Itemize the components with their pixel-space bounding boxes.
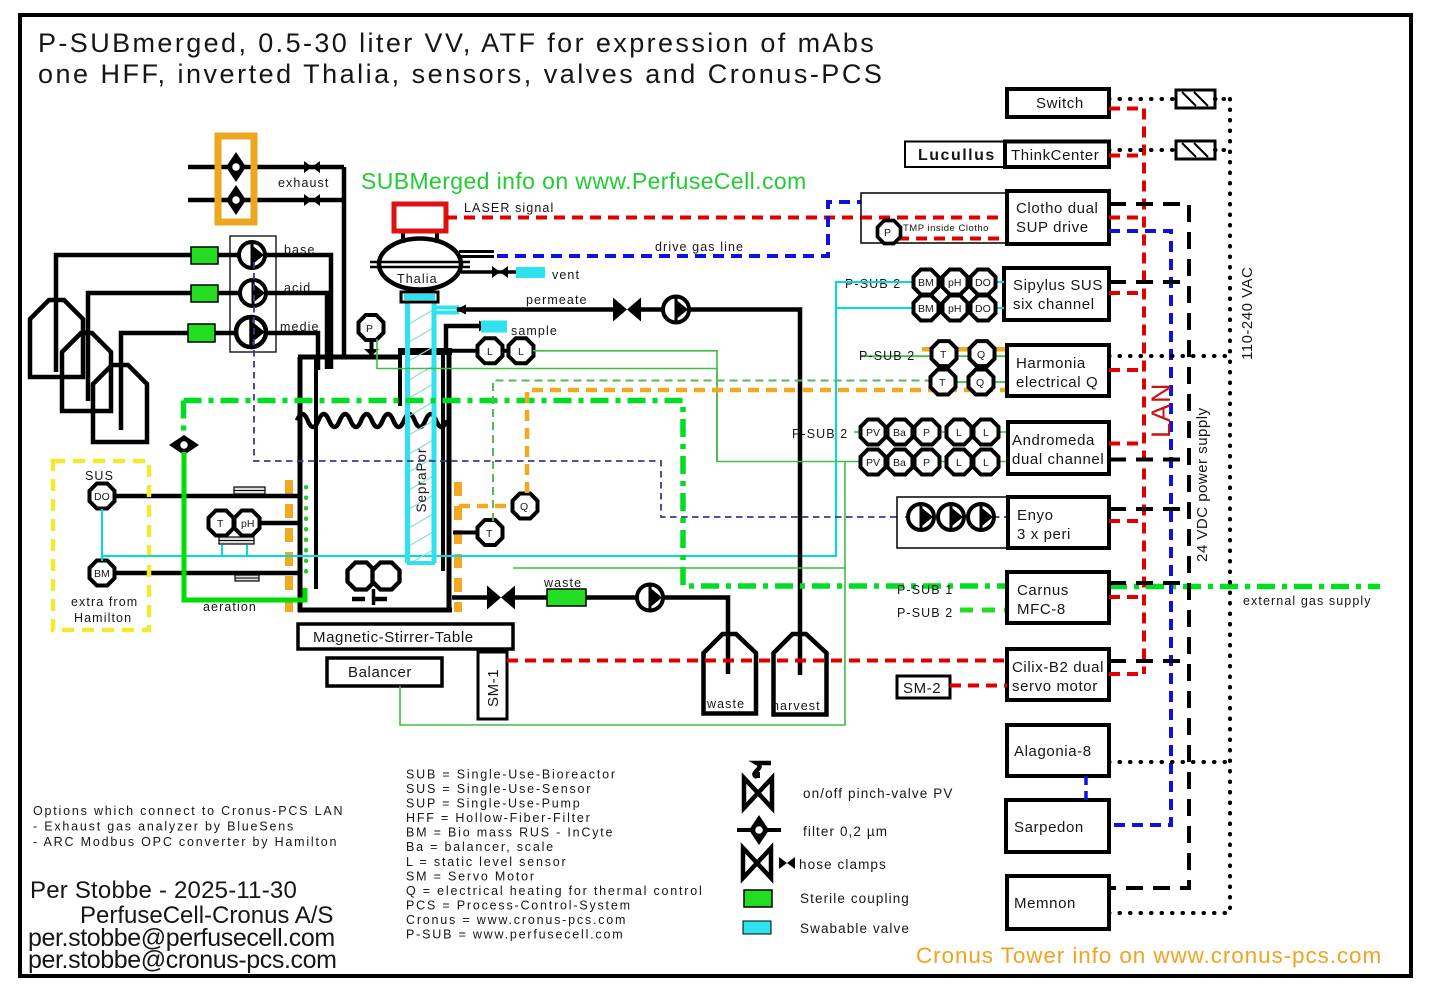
svg-text:ThinkCenter: ThinkCenter — [1011, 147, 1099, 164]
svg-text:DO: DO — [975, 303, 991, 315]
svg-text:waste: waste — [543, 576, 582, 590]
svg-text:SUB = Single-Use-Bioreactor: SUB = Single-Use-Bioreactor — [406, 768, 617, 782]
svg-text:drive gas line: drive gas line — [655, 240, 744, 254]
svg-text:one HFF, inverted Thalia, sens: one HFF, inverted Thalia, sensors, valve… — [38, 59, 884, 89]
svg-text:L: L — [956, 457, 962, 469]
svg-text:Per Stobbe - 2025-11-30: Per Stobbe - 2025-11-30 — [30, 877, 297, 904]
svg-text:SUP = Single-Use-Pump: SUP = Single-Use-Pump — [406, 797, 581, 811]
svg-text:medie: medie — [280, 320, 320, 334]
svg-text:acid: acid — [284, 281, 311, 295]
svg-text:exhaust: exhaust — [278, 176, 329, 190]
svg-text:PV: PV — [866, 427, 880, 439]
svg-text:Balancer: Balancer — [348, 664, 412, 681]
svg-text:L: L — [518, 346, 524, 358]
svg-text:Magnetic-Stirrer-Table: Magnetic-Stirrer-Table — [313, 629, 474, 646]
svg-text:PCS = Process-Control-System: PCS = Process-Control-System — [406, 898, 632, 912]
svg-text:permeate: permeate — [526, 293, 588, 307]
svg-text:- ARC Modbus OPC converter by: - ARC Modbus OPC converter by Hamilton — [33, 835, 338, 849]
svg-text:Sipylus SUS: Sipylus SUS — [1013, 277, 1103, 294]
svg-text:Memnon: Memnon — [1014, 895, 1076, 912]
svg-text:3 x peri: 3 x peri — [1017, 526, 1071, 543]
svg-text:P: P — [923, 427, 930, 439]
svg-text:Cronus = www.cronus-pcs.com: Cronus = www.cronus-pcs.com — [406, 913, 627, 927]
svg-text:harvest: harvest — [772, 699, 821, 713]
svg-text:P-SUB 1: P-SUB 1 — [897, 583, 953, 597]
svg-text:Cronus Tower info on www.cronu: Cronus Tower info on www.cronus-pcs.com — [916, 943, 1382, 968]
svg-text:SUP drive: SUP drive — [1016, 219, 1089, 236]
svg-text:DO: DO — [975, 277, 991, 289]
svg-text:T: T — [939, 377, 946, 389]
svg-text:HFF = Hollow-Fiber-Filter: HFF = Hollow-Fiber-Filter — [406, 811, 592, 825]
svg-text:Carnus: Carnus — [1017, 582, 1069, 599]
svg-text:BM: BM — [918, 277, 934, 289]
svg-text:LASER signal: LASER signal — [464, 201, 554, 215]
svg-text:P: P — [366, 323, 373, 335]
svg-text:24 VDC power supply: 24 VDC power supply — [1194, 407, 1211, 562]
svg-text:aeration: aeration — [203, 600, 257, 614]
svg-text:per.stobbe@cronus-pcs.com: per.stobbe@cronus-pcs.com — [28, 946, 337, 974]
svg-text:Hamilton: Hamilton — [74, 611, 132, 625]
svg-text:Cilix-B2 dual: Cilix-B2 dual — [1012, 659, 1104, 676]
svg-text:Sarpedon: Sarpedon — [1014, 819, 1084, 836]
svg-text:Harmonia: Harmonia — [1016, 355, 1086, 372]
svg-text:pH: pH — [948, 303, 961, 315]
svg-text:L: L — [956, 427, 962, 439]
svg-text:PV: PV — [866, 457, 880, 469]
svg-text:DO: DO — [94, 491, 110, 503]
svg-text:Swabable valve: Swabable valve — [800, 921, 910, 936]
svg-text:SM-2: SM-2 — [903, 680, 941, 697]
svg-text:SUBMerged info on www.PerfuseC: SUBMerged info on www.PerfuseCell.com — [361, 168, 807, 194]
svg-text:P-SUB 2: P-SUB 2 — [845, 277, 901, 291]
svg-text:110-240 VAC: 110-240 VAC — [1239, 267, 1256, 360]
svg-text:Q: Q — [976, 377, 984, 389]
svg-text:- Exhaust gas analyzer by Blue: - Exhaust gas analyzer by BlueSens — [33, 820, 295, 834]
svg-text:BM = Bio mass RUS - InCyte: BM = Bio mass RUS - InCyte — [406, 826, 614, 840]
svg-text:P-SUBmerged, 0.5-30 liter VV,: P-SUBmerged, 0.5-30 liter VV, ATF for ex… — [38, 28, 876, 58]
svg-text:BM: BM — [94, 568, 110, 580]
svg-text:pH: pH — [241, 518, 254, 530]
svg-text:P-SUB 2: P-SUB 2 — [792, 427, 848, 441]
svg-text:Thalia: Thalia — [397, 272, 438, 286]
svg-text:six channel: six channel — [1013, 296, 1095, 313]
svg-text:Ba = balancer, scale: Ba = balancer, scale — [406, 840, 555, 854]
svg-text:P-SUB 2: P-SUB 2 — [859, 349, 915, 363]
svg-text:Clotho dual: Clotho dual — [1016, 200, 1099, 217]
svg-text:Alagonia-8: Alagonia-8 — [1014, 743, 1092, 760]
svg-text:vent: vent — [552, 268, 580, 282]
svg-text:SM = Servo Motor: SM = Servo Motor — [406, 869, 536, 883]
svg-text:on/off pinch-valve PV: on/off pinch-valve PV — [803, 786, 953, 801]
svg-text:Switch: Switch — [1036, 95, 1084, 112]
svg-text:SepraPor: SepraPor — [414, 447, 429, 512]
svg-text:electrical Q: electrical Q — [1016, 374, 1098, 391]
svg-text:dual channel: dual channel — [1012, 451, 1104, 468]
svg-text:TMP inside Clotho: TMP inside Clotho — [903, 223, 989, 234]
svg-text:SUS: SUS — [85, 469, 114, 483]
svg-text:L: L — [983, 427, 989, 439]
svg-text:MFC-8: MFC-8 — [1017, 601, 1066, 618]
svg-text:servo motor: servo motor — [1012, 678, 1098, 695]
svg-text:Q: Q — [520, 501, 528, 513]
svg-text:LAN: LAN — [1146, 382, 1176, 438]
svg-text:pH: pH — [948, 277, 961, 289]
svg-text:external gas supply: external gas supply — [1243, 594, 1372, 608]
svg-text:Options which connect to Cronu: Options which connect to Cronus-PCS LAN — [33, 804, 344, 818]
svg-text:waste: waste — [706, 697, 745, 711]
svg-text:P: P — [923, 457, 930, 469]
svg-text:sample: sample — [511, 324, 558, 338]
svg-text:Ba: Ba — [893, 427, 906, 439]
svg-text:extra from: extra from — [71, 595, 138, 609]
svg-text:Enyo: Enyo — [1017, 507, 1054, 524]
svg-text:L = static level sensor: L = static level sensor — [406, 855, 567, 869]
svg-text:T: T — [217, 518, 224, 530]
svg-text:Q: Q — [977, 349, 985, 361]
svg-text:P: P — [884, 227, 891, 239]
svg-text:T: T — [940, 349, 947, 361]
svg-text:L: L — [983, 457, 989, 469]
svg-text:Sterile coupling: Sterile coupling — [800, 891, 910, 906]
svg-text:Ba: Ba — [893, 457, 906, 469]
svg-text:Andromeda: Andromeda — [1012, 432, 1095, 449]
svg-text:SM-1: SM-1 — [485, 669, 502, 707]
svg-text:T: T — [486, 528, 493, 540]
svg-text:L: L — [487, 346, 493, 358]
svg-text:base: base — [284, 243, 316, 257]
svg-text:P-SUB = www.perfusecell.com: P-SUB = www.perfusecell.com — [406, 928, 624, 942]
svg-text:SUS = Single-Use-Sensor: SUS = Single-Use-Sensor — [406, 782, 592, 796]
svg-text:filter 0,2 µm: filter 0,2 µm — [803, 824, 888, 839]
svg-text:BM: BM — [918, 303, 934, 315]
svg-text:P-SUB 2: P-SUB 2 — [897, 606, 953, 620]
svg-text:hose clamps: hose clamps — [799, 857, 887, 872]
svg-text:Lucullus: Lucullus — [918, 147, 996, 164]
svg-text:Q = electrical heating for the: Q = electrical heating for thermal contr… — [406, 884, 704, 898]
